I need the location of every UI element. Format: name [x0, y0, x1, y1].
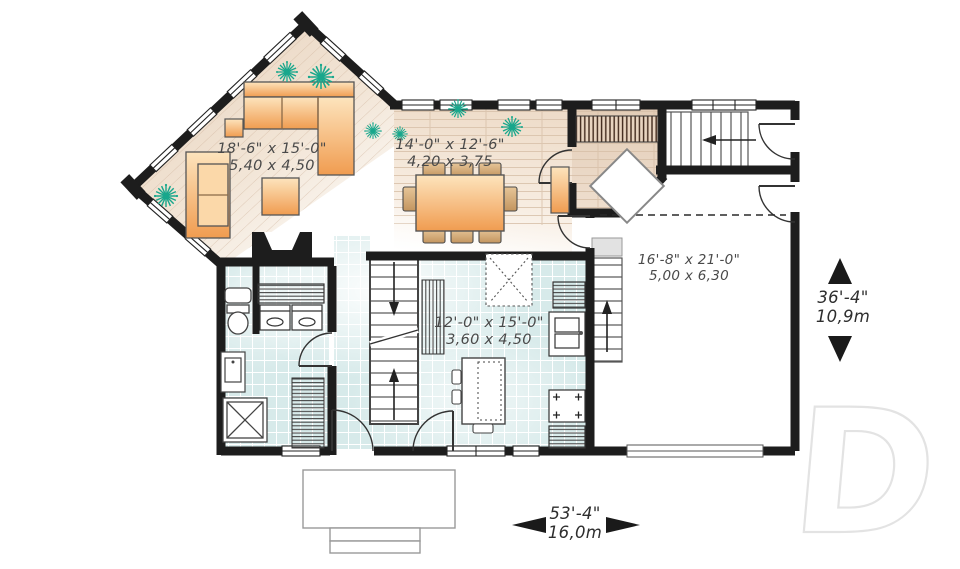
pantry [486, 254, 532, 306]
stove-icon [549, 390, 585, 422]
dining-table [416, 175, 504, 231]
stool [452, 370, 461, 384]
kitchen-metric: 3,60 x 4,50 [389, 332, 589, 349]
depth-imperial: 36'-4" [783, 288, 903, 307]
vanity [221, 352, 245, 392]
stool [452, 390, 461, 404]
fireplace [252, 232, 312, 266]
side-table [225, 119, 243, 137]
dining-metric: 4,20 x 3,75 [350, 154, 550, 171]
width-metric: 16,0m [515, 523, 635, 542]
floor-plan-drawing: D [0, 0, 960, 569]
shower [223, 398, 267, 442]
stool [473, 424, 493, 433]
garage-imperial: 16'-8" x 21'-0" [589, 253, 789, 269]
depth-metric: 10,9m [783, 307, 903, 326]
kitchen-label: 12'-0" x 15'-0" 3,60 x 4,50 [389, 315, 589, 349]
dining-imperial: 14'-0" x 12'-6" [350, 137, 550, 154]
mudroom-staircase [664, 112, 756, 168]
arrow-up-icon [828, 258, 852, 284]
ottoman [262, 178, 299, 215]
watermark-letter: D [784, 372, 944, 569]
garage-label: 16'-8" x 21'-0" 5,00 x 6,30 [589, 253, 789, 285]
arrow-down-icon [828, 336, 852, 362]
living-imperial: 18'-6" x 15'-0" [172, 141, 372, 158]
living-metric: 5,40 x 4,50 [172, 158, 372, 175]
laundry-closet [292, 378, 324, 448]
width-imperial: 53'-4" [515, 504, 635, 523]
kitchen-imperial: 12'-0" x 15'-0" [389, 315, 589, 332]
foyer-closet [576, 116, 658, 142]
buffet [551, 167, 569, 213]
dining-room-label: 14'-0" x 12'-6" 4,20 x 3,75 [350, 137, 550, 171]
width-dimension-label: 53'-4" 16,0m [515, 504, 635, 543]
depth-dimension-label: 36'-4" 10,9m [783, 288, 903, 327]
bathroom-sink [225, 288, 251, 303]
garage-metric: 5,00 x 6,30 [589, 269, 789, 285]
toilet-icon [227, 305, 249, 334]
porch [303, 470, 455, 553]
floor-plan: D 18'-6" x 15'-0" 5,40 x 4,50 14'-0" x 1… [0, 0, 960, 569]
living-room-label: 18'-6" x 15'-0" 5,40 x 4,50 [172, 141, 372, 175]
garage-door [627, 445, 763, 457]
